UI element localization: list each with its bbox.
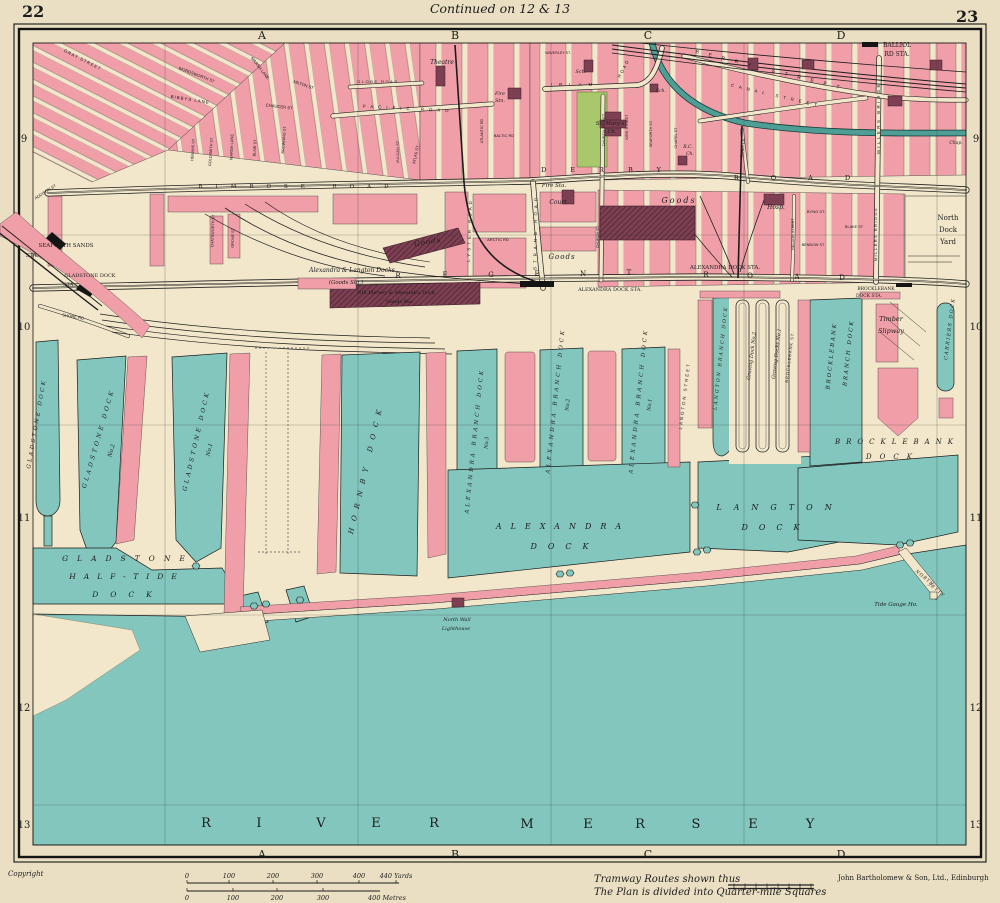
map-label: RIMROSE ROAD — [198, 184, 401, 190]
map-label: DERBY — [541, 166, 685, 174]
map-page: GRAY STREETWORDSWORTH STBIBBYS LANEMARSH… — [0, 0, 1000, 903]
map-label: VULCAN ST — [395, 140, 400, 163]
scale-tick-label: 0 — [185, 894, 189, 902]
map-label: North Wall — [442, 617, 471, 623]
map-label: IRLAM — [551, 82, 599, 87]
map-label: E — [371, 816, 381, 831]
quarter-mile-note: The Plan is divided into Quarter-mile Sq… — [594, 887, 826, 898]
brocklebank-dock-station — [896, 283, 912, 287]
map-label: DOCK — [529, 542, 599, 551]
map-label: Goods Sta. — [386, 299, 414, 305]
map-label: Ch. — [686, 151, 694, 157]
north-wall-lighthouse — [452, 598, 464, 607]
grid-row-label: 12 — [18, 703, 31, 714]
tramway-note: Tramway Routes shown thus — [594, 874, 740, 885]
map-label: STA. — [63, 282, 75, 288]
copyright-note: Copyright — [8, 870, 43, 878]
map-label: BLAKE ST — [845, 225, 864, 229]
hornby-dock — [340, 352, 420, 576]
grid-row-label: 9 — [973, 134, 979, 145]
map-label: CHAPEL ST — [674, 127, 678, 149]
fire-station-building — [508, 88, 521, 99]
map-label: Stn. — [495, 98, 505, 104]
map-label: CHURCH ST — [596, 225, 600, 248]
scale-tick-label: 400 — [352, 872, 365, 880]
map-label: Theatre — [430, 59, 454, 66]
grid-row-label: 13 — [970, 820, 983, 831]
map-label: D — [839, 274, 845, 282]
map-label: GLOBE ROAD — [357, 79, 398, 84]
map-label: R — [635, 817, 646, 832]
map-label: Y — [805, 817, 815, 832]
map-label: BYNG ST. — [807, 209, 825, 214]
map-label: E — [748, 817, 758, 832]
grid-row-label: 12 — [970, 703, 983, 714]
map-label: GLADSTONE DOCK — [64, 273, 115, 279]
map-label: R — [429, 816, 440, 831]
gladstone-dock — [36, 340, 60, 516]
map-label: ALEXANDRA — [495, 522, 630, 531]
scale-tick-label: 300 — [317, 894, 329, 902]
map-canvas: GRAY STREETWORDSWORTH STBIBBYS LANEMARSH… — [0, 0, 1000, 903]
grid-row-label: 10 — [970, 322, 983, 333]
grid-column-label: A — [257, 29, 267, 42]
map-label: Alexandra & Langton Docks — [308, 267, 395, 274]
map-label: LANGTON — [715, 503, 843, 512]
map-label: R — [395, 272, 401, 280]
map-label: DOCK STA. — [856, 293, 883, 299]
map-label: O — [747, 272, 753, 280]
map-label: I — [256, 816, 261, 831]
map-label: BROCKLEBANK — [857, 286, 895, 292]
scale-tick-label: 200 — [266, 872, 279, 880]
map-label: Slipway — [878, 327, 904, 335]
map-label: Fire — [494, 91, 505, 97]
map-label: MILLERS BRIDGE — [873, 207, 878, 262]
map-label: GLADSTONE — [62, 554, 194, 563]
map-label: Lighthouse — [441, 626, 470, 632]
grid-column-label: C — [644, 29, 652, 42]
grid-row-label: 10 — [18, 322, 31, 333]
map-label: Court — [549, 199, 567, 206]
grid-row-label: 11 — [970, 513, 983, 524]
map-label: BROCKLEBANK — [834, 438, 959, 446]
map-label: BALLIOL — [883, 42, 911, 49]
publisher-imprint: John Bartholomew & Son, Ltd., Edinburgh — [838, 874, 982, 882]
map-label: R — [201, 816, 212, 831]
map-label: RD STA. — [884, 51, 909, 58]
map-label: DOCK — [865, 453, 920, 461]
map-label: Goods — [548, 253, 575, 261]
map-label: T — [627, 269, 632, 277]
scale-tick-label: 200 — [270, 894, 283, 902]
map-label: SEAFORTH SANDS — [38, 243, 93, 249]
map-label: Sch. — [575, 69, 586, 75]
map-label: V — [315, 816, 326, 831]
theatre-building — [436, 66, 445, 86]
grid-column-label: A — [257, 848, 267, 861]
map-label: MILLERS BRIDGE — [876, 82, 881, 154]
page-number-left: 22 — [22, 2, 44, 21]
map-label: WAVERLEY ST. — [545, 51, 571, 55]
map-label: E — [534, 270, 539, 278]
map-label: ALEXANDRA DOCK STA. — [577, 287, 642, 293]
map-label: BALTIC RD — [494, 133, 515, 138]
map-label: DOCK — [91, 590, 164, 599]
map-label: DOCK — [740, 523, 810, 532]
map-label: E — [442, 271, 447, 279]
scale-tick-label: 440 Yards — [379, 872, 413, 880]
gladstone-dock-no1 — [172, 353, 227, 562]
scale-tick-label: 300 — [311, 872, 323, 880]
map-label: Sch. — [656, 88, 667, 94]
map-label: S — [692, 817, 701, 832]
scale-tick-label: 100 — [227, 894, 239, 902]
grid-column-label: C — [644, 848, 652, 861]
map-label: ROAD — [734, 174, 882, 182]
map-label: Tide Gauge Ho. — [874, 602, 918, 608]
map-label: CHURCH STREET — [602, 113, 606, 146]
map-label: GROVE ST — [231, 227, 236, 247]
map-label: MARSH LANE — [229, 134, 235, 160]
scale-tick-label: 400 Metres — [367, 894, 407, 902]
map-label: Chap. — [949, 140, 963, 146]
grid-row-label: 13 — [18, 820, 31, 831]
map-label: E — [583, 817, 593, 832]
map-label: KIRK STREET — [625, 114, 629, 140]
map-label: Timber — [879, 315, 904, 323]
map-label: Ch. — [608, 129, 617, 135]
grid-row-label: 9 — [21, 134, 27, 145]
map-label: HALF-TIDE — [68, 572, 185, 581]
brocklebank-dock — [798, 455, 958, 545]
scale-tick-label: 0 — [185, 872, 189, 880]
map-label: R — [703, 271, 709, 279]
grid-column-label: D — [837, 848, 846, 861]
map-label: M — [520, 817, 533, 832]
map-label: SEAFORTH ST — [649, 120, 653, 147]
map-label: NELSON STREET — [791, 218, 795, 250]
scale-bars — [187, 880, 399, 891]
grid-column-label: D — [837, 29, 846, 42]
map-label: Dock — [939, 226, 958, 234]
map-label: ARCTIC RD — [487, 237, 509, 242]
map-label: N — [580, 270, 586, 278]
map-label: STA. — [26, 253, 39, 259]
map-label: (Goods Sta.) — [329, 279, 363, 286]
map-label: Goods — [661, 196, 696, 205]
map-label: Nth Mersey & Alexandra Dock — [357, 290, 436, 296]
alexandra-dock-station — [520, 281, 554, 287]
scale-tick-label: 100 — [223, 872, 235, 880]
map-label: Hosp. — [766, 204, 785, 211]
grid-column-label: B — [451, 29, 459, 42]
map-label: R.C. — [682, 144, 693, 150]
continued-note: Continued on 12 & 13 — [400, 1, 600, 16]
page-number-right: 23 — [956, 7, 978, 26]
grid-row-label: 11 — [18, 513, 31, 524]
map-label: Fire Sta. — [541, 183, 566, 189]
map-label: St. Mary's — [596, 121, 625, 127]
map-label: ATLANTIC RD — [480, 118, 484, 143]
grid-column-label: B — [451, 848, 459, 861]
map-label: Yard — [939, 238, 957, 246]
map-label: BENBOW ST — [802, 243, 825, 247]
map-label: G — [488, 271, 494, 279]
map-label: A — [793, 273, 800, 281]
map-label: North — [937, 214, 958, 222]
map-label: ALEXANDRA DOCK STA. — [689, 265, 761, 271]
